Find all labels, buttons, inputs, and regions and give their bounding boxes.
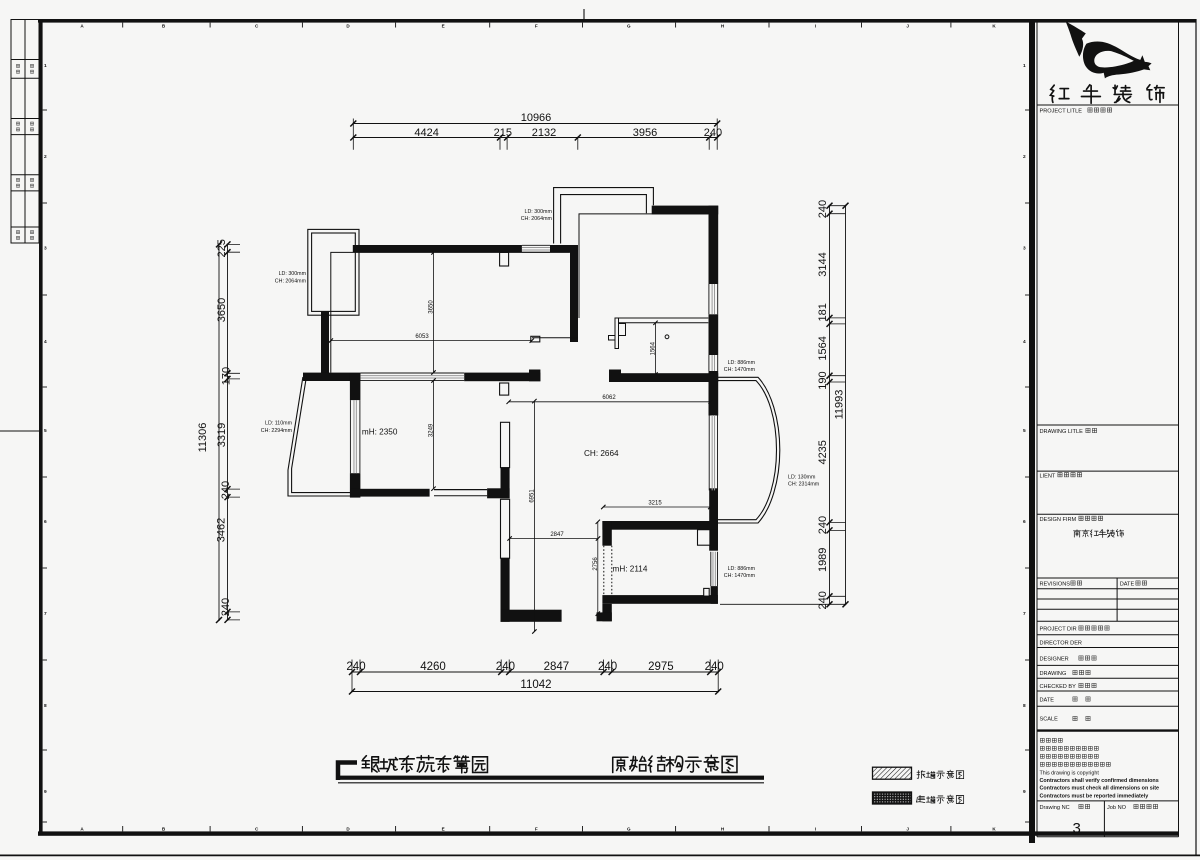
- svg-text:Contractors shall verify confi: Contractors shall verify confirmed dimen…: [1040, 778, 1159, 784]
- svg-text:J: J: [906, 24, 909, 29]
- svg-text:DATE: DATE: [1040, 698, 1055, 704]
- svg-text:PROJECT LITLE: PROJECT LITLE: [1040, 109, 1083, 115]
- svg-text:CH: 1470mm: CH: 1470mm: [724, 367, 756, 373]
- svg-text:1: 1: [44, 63, 47, 69]
- svg-text:mH: 2350: mH: 2350: [362, 428, 398, 437]
- svg-text:11306: 11306: [197, 423, 209, 453]
- svg-text:LD: 300mm: LD: 300mm: [279, 271, 307, 277]
- svg-text:170: 170: [221, 367, 233, 385]
- svg-text:6951: 6951: [529, 489, 535, 503]
- svg-text:LD: 886mm: LD: 886mm: [728, 360, 756, 366]
- svg-text:J: J: [906, 827, 909, 832]
- svg-text:2: 2: [1023, 154, 1026, 160]
- svg-text:DATE: DATE: [1120, 582, 1135, 588]
- svg-text:2847: 2847: [544, 661, 570, 673]
- svg-text:240: 240: [704, 127, 722, 139]
- svg-text:E: E: [442, 827, 445, 832]
- svg-text:DIRECTOR DER: DIRECTOR DER: [1040, 641, 1082, 647]
- svg-text:240: 240: [817, 200, 829, 218]
- svg-text:3650: 3650: [216, 298, 228, 322]
- svg-text:2847: 2847: [550, 532, 564, 538]
- svg-text:215: 215: [494, 127, 512, 139]
- svg-text:1989: 1989: [817, 548, 829, 572]
- svg-text:1: 1: [1023, 63, 1026, 69]
- svg-text:I: I: [815, 827, 816, 832]
- svg-text:10966: 10966: [521, 112, 552, 124]
- svg-text:6062: 6062: [602, 395, 616, 401]
- svg-text:1564: 1564: [817, 336, 829, 360]
- svg-text:3956: 3956: [633, 127, 657, 139]
- svg-text:190: 190: [817, 371, 829, 389]
- svg-text:3: 3: [44, 246, 47, 252]
- svg-text:CH: 2294mm: CH: 2294mm: [261, 428, 293, 434]
- svg-text:Drawing NC: Drawing NC: [1040, 805, 1070, 811]
- svg-text:3144: 3144: [817, 252, 829, 276]
- svg-text:5: 5: [44, 428, 47, 434]
- svg-text:3215: 3215: [648, 501, 662, 507]
- svg-text:6053: 6053: [415, 334, 429, 340]
- svg-text:3: 3: [1073, 820, 1081, 837]
- svg-text:3249: 3249: [428, 423, 434, 437]
- svg-text:PROJECT DIR: PROJECT DIR: [1040, 627, 1077, 633]
- svg-text:4: 4: [44, 339, 47, 345]
- svg-text:2: 2: [44, 154, 47, 160]
- svg-text:CH: 2064mm: CH: 2064mm: [521, 216, 553, 222]
- svg-text:LD: 300mm: LD: 300mm: [525, 209, 553, 215]
- svg-text:DRAWING LITLE: DRAWING LITLE: [1040, 429, 1084, 435]
- svg-text:9: 9: [44, 789, 47, 795]
- svg-text:LD: 130mm: LD: 130mm: [788, 475, 816, 481]
- svg-text:240: 240: [496, 661, 515, 673]
- svg-text:4260: 4260: [420, 661, 446, 673]
- svg-text:240: 240: [220, 598, 232, 616]
- svg-text:LIENT: LIENT: [1040, 474, 1056, 480]
- svg-text:Job NO: Job NO: [1107, 805, 1127, 811]
- svg-text:G: G: [627, 24, 631, 29]
- svg-text:Contractors must be reported i: Contractors must be reported immediately: [1040, 793, 1149, 799]
- svg-text:2975: 2975: [648, 661, 674, 673]
- svg-text:mH: 2114: mH: 2114: [613, 565, 648, 574]
- svg-text:6: 6: [44, 519, 47, 525]
- svg-text:3462: 3462: [216, 518, 228, 542]
- svg-text:REVISIONS: REVISIONS: [1040, 582, 1071, 588]
- svg-text:CH: 2664: CH: 2664: [584, 449, 619, 458]
- svg-text:240: 240: [598, 661, 617, 673]
- svg-text:2132: 2132: [532, 127, 556, 139]
- svg-text:11042: 11042: [520, 679, 551, 691]
- svg-text:F: F: [535, 24, 538, 29]
- svg-text:SCALE: SCALE: [1040, 717, 1059, 723]
- svg-text:3319: 3319: [216, 423, 228, 447]
- svg-text:1564: 1564: [651, 341, 657, 355]
- svg-text:3650: 3650: [428, 300, 434, 314]
- svg-text:11993: 11993: [834, 390, 846, 420]
- svg-text:3: 3: [1023, 246, 1026, 252]
- svg-text:8: 8: [1023, 703, 1026, 709]
- svg-text:LD: 110mm: LD: 110mm: [265, 421, 293, 427]
- svg-text:DRAWING: DRAWING: [1040, 671, 1067, 677]
- svg-text:This drawing is copyright: This drawing is copyright: [1040, 770, 1100, 776]
- svg-text:CH: 2064mm: CH: 2064mm: [275, 279, 307, 285]
- svg-text:E: E: [442, 24, 445, 29]
- svg-text:4: 4: [1023, 339, 1026, 345]
- svg-text:240: 240: [705, 661, 724, 673]
- svg-text:DESIGNER: DESIGNER: [1040, 657, 1069, 663]
- svg-text:240: 240: [220, 481, 232, 499]
- svg-text:CH: 1470mm: CH: 1470mm: [724, 573, 756, 579]
- svg-text:240: 240: [817, 516, 829, 534]
- svg-text:2756: 2756: [593, 557, 599, 571]
- svg-text:CH: 2314mm: CH: 2314mm: [788, 482, 820, 488]
- svg-text:8: 8: [44, 703, 47, 709]
- svg-text:4235: 4235: [817, 440, 829, 464]
- svg-text:7: 7: [44, 611, 47, 617]
- svg-text:6: 6: [1023, 519, 1026, 525]
- svg-text:240: 240: [817, 591, 829, 609]
- svg-text:G: G: [627, 827, 631, 832]
- svg-text:9: 9: [1023, 789, 1026, 795]
- svg-text:F: F: [535, 827, 538, 832]
- svg-text:Contractors must check all dim: Contractors must check all dimensions on…: [1040, 786, 1160, 792]
- svg-text:CHECKED BY: CHECKED BY: [1040, 684, 1077, 690]
- svg-text:4424: 4424: [414, 127, 438, 139]
- svg-text:I: I: [815, 24, 816, 29]
- svg-text:LD: 886mm: LD: 886mm: [728, 566, 756, 572]
- svg-text:5: 5: [1023, 428, 1026, 434]
- svg-text:181: 181: [817, 303, 829, 321]
- svg-text:DESIGN FIRM: DESIGN FIRM: [1040, 517, 1077, 523]
- svg-text:240: 240: [346, 661, 365, 673]
- svg-text:7: 7: [1023, 611, 1026, 617]
